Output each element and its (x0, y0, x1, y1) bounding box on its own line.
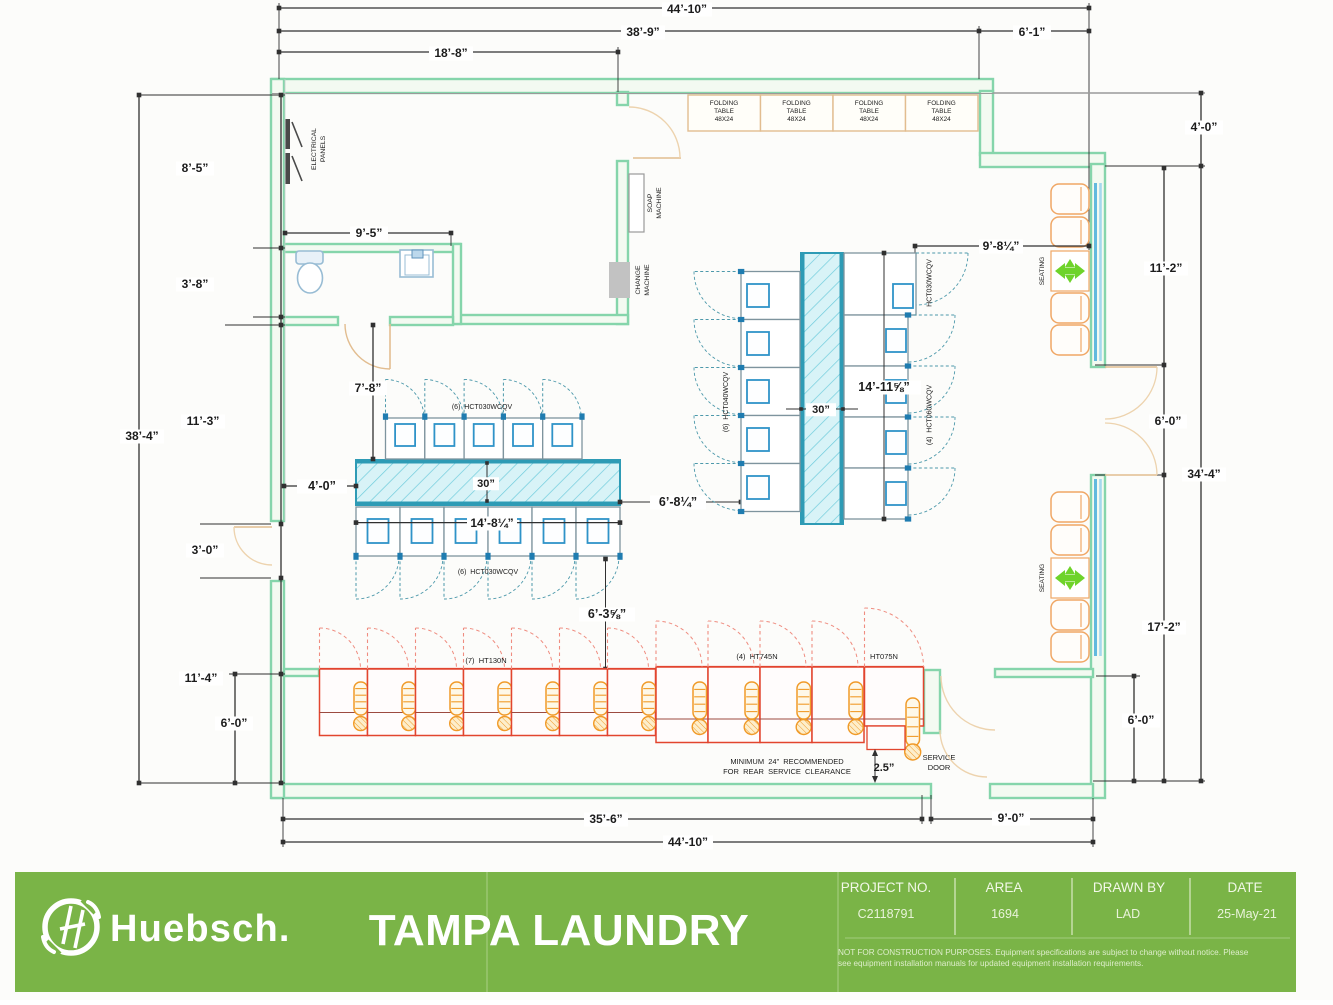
svg-text:C2118791: C2118791 (858, 907, 915, 921)
svg-text:30”: 30” (812, 404, 830, 416)
svg-text:DOOR: DOOR (928, 763, 951, 772)
svg-text:(4) HT745N: (4) HT745N (736, 652, 777, 661)
svg-text:PROJECT NO.: PROJECT NO. (841, 880, 932, 895)
svg-text:11’-3”: 11’-3” (187, 414, 220, 428)
svg-text:DATE: DATE (1227, 880, 1262, 895)
svg-text:FOLDING: FOLDING (782, 100, 810, 107)
svg-text:34’-4”: 34’-4” (1187, 467, 1220, 481)
svg-text:38’-4”: 38’-4” (125, 429, 158, 443)
svg-text:SOAP: SOAP (647, 193, 654, 212)
svg-text:FOLDING: FOLDING (710, 100, 738, 107)
svg-text:TAMPA LAUNDRY: TAMPA LAUNDRY (369, 906, 749, 955)
svg-text:(4) HCT060WCQV: (4) HCT060WCQV (927, 385, 934, 446)
svg-text:48X24: 48X24 (932, 116, 951, 123)
svg-text:14’-11⅝”: 14’-11⅝” (858, 380, 909, 394)
svg-text:FOR REAR SERVICE CLEARANCE: FOR REAR SERVICE CLEARANCE (723, 767, 851, 776)
svg-text:9’-8¼”: 9’-8¼” (983, 239, 1020, 253)
svg-text:1694: 1694 (991, 907, 1019, 921)
svg-text:3’-0”: 3’-0” (192, 543, 219, 557)
svg-text:ELECTRICAL: ELECTRICAL (311, 128, 318, 170)
svg-text:35’-6”: 35’-6” (589, 812, 622, 826)
svg-text:NOT FOR CONSTRUCTION PURPOSES.: NOT FOR CONSTRUCTION PURPOSES. Equipment… (838, 948, 1249, 957)
svg-text:6’-0”: 6’-0” (221, 716, 248, 730)
svg-text:TABLE: TABLE (932, 108, 952, 115)
svg-text:TABLE: TABLE (859, 108, 879, 115)
svg-text:44’-10”: 44’-10” (667, 2, 707, 16)
svg-text:(7) HT130N: (7) HT130N (465, 656, 506, 665)
svg-text:MACHINE: MACHINE (656, 187, 663, 219)
svg-text:HCT030WCQV: HCT030WCQV (927, 259, 934, 307)
svg-text:MINIMUM 24” RECOMMENDED: MINIMUM 24” RECOMMENDED (730, 757, 844, 766)
svg-text:6’-1”: 6’-1” (1019, 25, 1046, 39)
svg-text:6’-0”: 6’-0” (1128, 713, 1155, 727)
svg-text:4’-0”: 4’-0” (1191, 120, 1218, 134)
svg-text:HT075N: HT075N (870, 652, 898, 661)
svg-text:SEATING: SEATING (1039, 257, 1046, 285)
svg-text:LAD: LAD (1116, 907, 1140, 921)
svg-text:TABLE: TABLE (714, 108, 734, 115)
svg-text:CHANGE: CHANGE (635, 265, 642, 295)
svg-text:9’-5”: 9’-5” (356, 226, 383, 240)
svg-text:FOLDING: FOLDING (855, 100, 883, 107)
svg-text:(6) HCT040WCQV: (6) HCT040WCQV (723, 372, 730, 433)
svg-text:17’-2”: 17’-2” (1147, 620, 1180, 634)
svg-text:11’-2”: 11’-2” (1150, 261, 1183, 275)
svg-text:38’-9”: 38’-9” (626, 25, 659, 39)
svg-text:30”: 30” (477, 478, 495, 490)
svg-text:25-May-21: 25-May-21 (1217, 907, 1277, 921)
svg-text:7’-8”: 7’-8” (355, 381, 382, 395)
svg-text:SEATING: SEATING (1039, 564, 1046, 592)
svg-text:6’-0”: 6’-0” (1155, 414, 1182, 428)
svg-text:11’-4”: 11’-4” (185, 671, 218, 685)
svg-text:AREA: AREA (986, 880, 1023, 895)
svg-text:(6) HCT030WCQV: (6) HCT030WCQV (452, 404, 513, 411)
svg-text:(6) HCT030WCQV: (6) HCT030WCQV (458, 569, 519, 576)
svg-text:DRAWN BY: DRAWN BY (1093, 880, 1165, 895)
svg-text:FOLDING: FOLDING (927, 100, 955, 107)
svg-text:3’-8”: 3’-8” (182, 277, 209, 291)
svg-text:4’-0”: 4’-0” (308, 479, 336, 493)
svg-text:8’-5”: 8’-5” (182, 161, 209, 175)
svg-text:2.5”: 2.5” (874, 762, 895, 774)
svg-text:14’-8¼”: 14’-8¼” (470, 516, 513, 530)
svg-text:TABLE: TABLE (787, 108, 807, 115)
svg-text:MACHINE: MACHINE (644, 264, 651, 296)
svg-text:48X24: 48X24 (715, 116, 734, 123)
svg-text:44’-10”: 44’-10” (668, 835, 708, 849)
svg-text:Huebsch.: Huebsch. (110, 908, 291, 950)
svg-text:9’-0”: 9’-0” (998, 811, 1025, 825)
svg-text:6’-8¼”: 6’-8¼” (659, 495, 697, 509)
svg-text:48X24: 48X24 (860, 116, 879, 123)
svg-text:48X24: 48X24 (787, 116, 806, 123)
svg-text:6’-3⅝”: 6’-3⅝” (588, 607, 626, 621)
svg-text:18’-8”: 18’-8” (434, 46, 467, 60)
svg-text:see equipment installation man: see equipment installation manuals for u… (838, 959, 1143, 968)
svg-text:PANELS: PANELS (320, 135, 327, 162)
